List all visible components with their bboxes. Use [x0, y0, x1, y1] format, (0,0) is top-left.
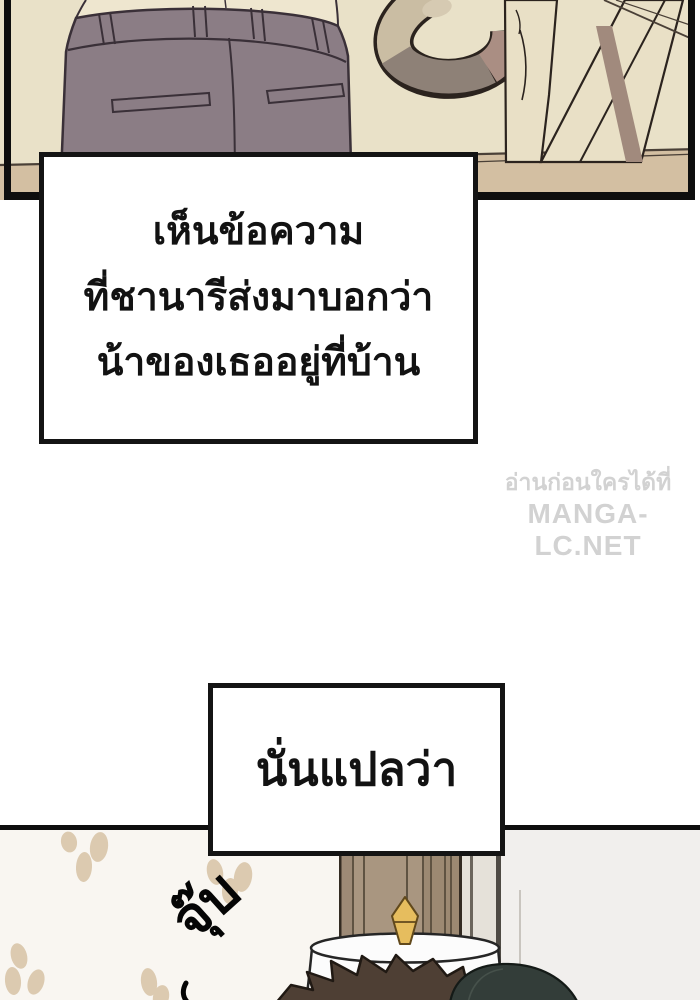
manga-page: เห็นข้อความ ที่ชานารีส่งมาบอกว่า น้าของเ…: [0, 0, 700, 1000]
watermark-tagline: อ่านก่อนใครได้ที่: [476, 466, 700, 498]
watermark-site-name: MANGA-LC.NET: [476, 498, 700, 562]
narration-box-1: เห็นข้อความ ที่ชานารีส่งมาบอกว่า น้าของเ…: [39, 152, 478, 444]
narration-line: ที่ชานารีส่งมาบอกว่า: [84, 276, 434, 321]
site-watermark: อ่านก่อนใครได้ที่ MANGA-LC.NET: [476, 466, 700, 562]
narration-line: น้าของเธออยู่ที่บ้าน: [97, 341, 421, 386]
narration-line: เห็นข้อความ: [153, 210, 364, 255]
narration-line: นั่นแปลว่า: [256, 733, 458, 806]
